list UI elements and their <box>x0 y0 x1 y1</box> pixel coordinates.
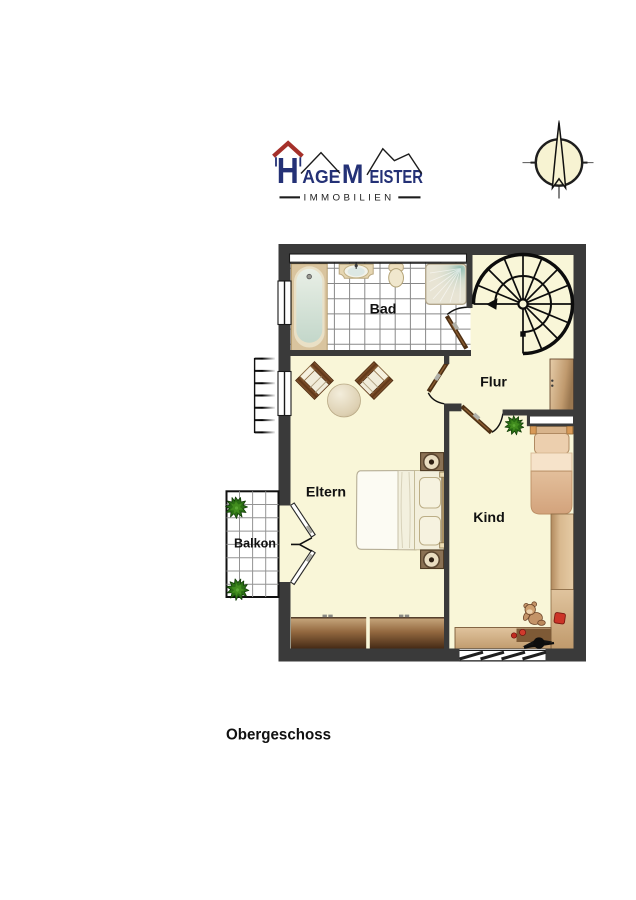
svg-text:IMMOBILIEN: IMMOBILIEN <box>304 192 395 202</box>
svg-text:EISTER: EISTER <box>370 166 424 187</box>
svg-text:M: M <box>342 159 364 189</box>
svg-text:Balkon: Balkon <box>234 536 276 550</box>
svg-text:Kind: Kind <box>473 510 505 526</box>
svg-text:Eltern: Eltern <box>306 485 346 501</box>
svg-text:H: H <box>277 150 299 191</box>
svg-text:AGE: AGE <box>302 166 340 187</box>
svg-text:Bad: Bad <box>370 302 397 318</box>
svg-text:Obergeschoss: Obergeschoss <box>226 726 331 743</box>
svg-text:Flur: Flur <box>480 374 507 390</box>
